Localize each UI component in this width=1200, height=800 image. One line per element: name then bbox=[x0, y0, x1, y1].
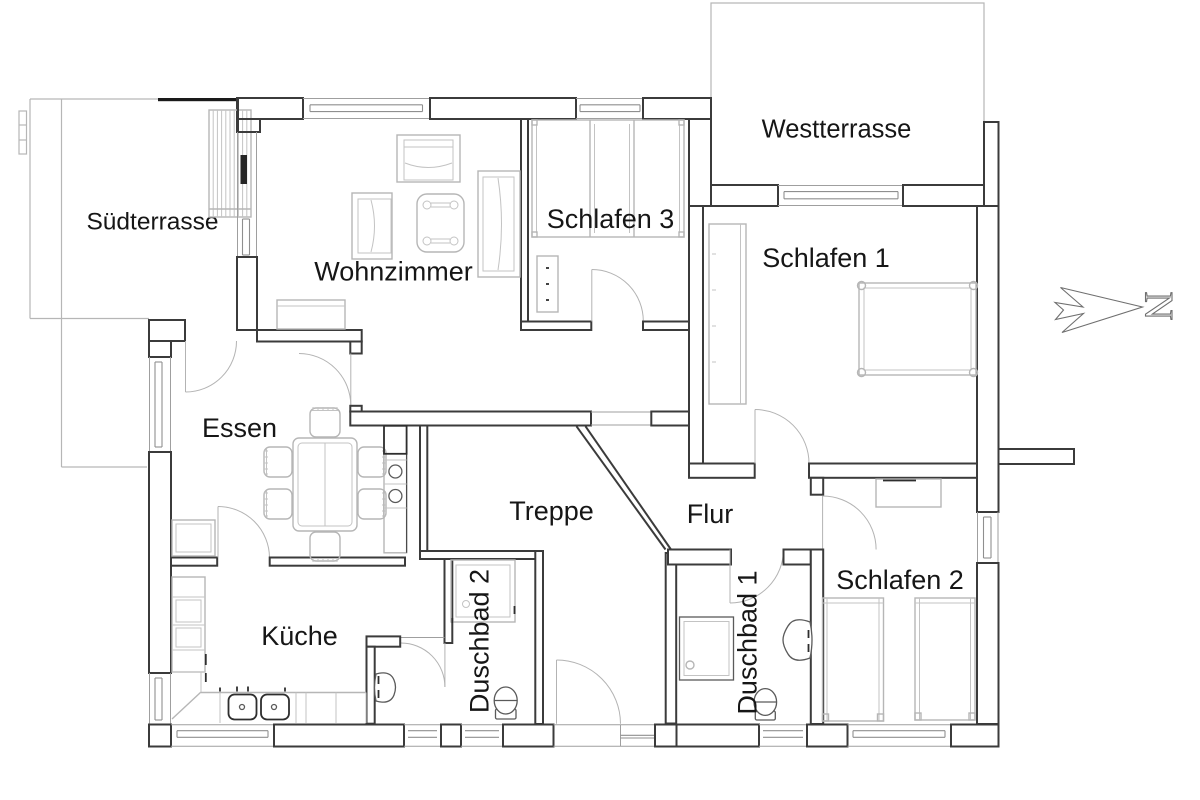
svg-text:Treppe: Treppe bbox=[509, 496, 594, 526]
svg-text:Duschbad 2: Duschbad 2 bbox=[465, 569, 495, 713]
svg-text:Duschbad 1: Duschbad 1 bbox=[733, 570, 763, 714]
svg-text:Südterrasse: Südterrasse bbox=[86, 209, 218, 236]
svg-text:Essen: Essen bbox=[202, 413, 277, 443]
svg-text:Küche: Küche bbox=[261, 621, 338, 651]
svg-text:Schlafen 2: Schlafen 2 bbox=[836, 565, 964, 595]
svg-text:N: N bbox=[1137, 292, 1182, 321]
svg-text:Flur: Flur bbox=[687, 499, 734, 529]
svg-text:Westterrasse: Westterrasse bbox=[762, 116, 912, 144]
svg-text:Schlafen 3: Schlafen 3 bbox=[547, 204, 675, 234]
svg-text:Schlafen 1: Schlafen 1 bbox=[762, 243, 890, 273]
svg-text:Wohnzimmer: Wohnzimmer bbox=[314, 257, 473, 287]
